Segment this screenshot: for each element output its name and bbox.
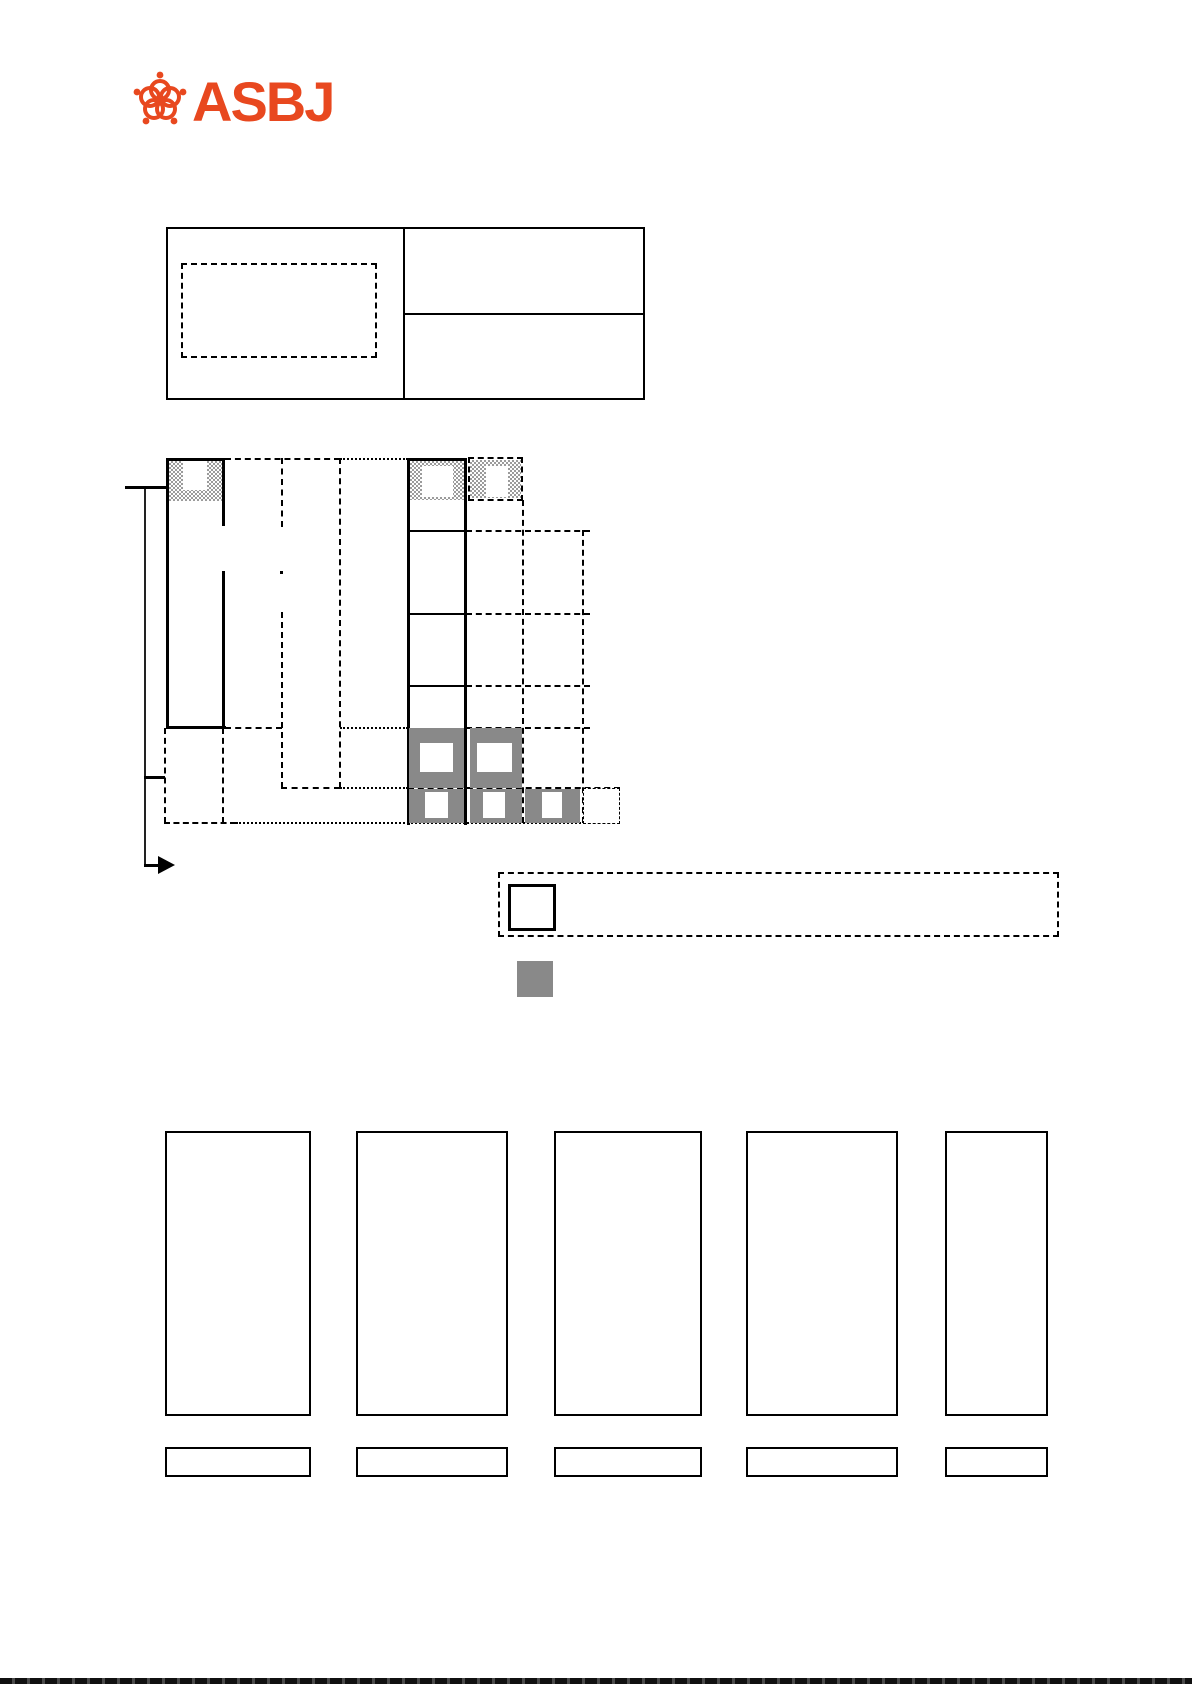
asbj-logo-text: ASBJ — [192, 74, 333, 130]
grid-row-line-2 — [466, 613, 590, 615]
grid-row-line-1 — [466, 530, 590, 532]
column2-right-edge — [464, 458, 467, 825]
appendix-caption-3 — [554, 1447, 702, 1477]
appendix-column-3 — [554, 1131, 702, 1416]
divider-x340 — [339, 458, 341, 788]
column1-bottom-edge — [166, 726, 226, 729]
asbj-logo: ASBJ — [130, 68, 333, 135]
document-page: ASBJ — [0, 0, 1192, 1685]
grid-row-line-3 — [466, 685, 590, 687]
hatched-header-3-inset — [486, 466, 508, 497]
gray-block-3-notch — [425, 792, 448, 818]
lower-left-edge — [164, 728, 166, 823]
left-bracket-line — [144, 486, 146, 866]
column1-right-edge-lower — [222, 571, 225, 728]
hatched-header-2-inset — [422, 466, 453, 497]
appendix-caption-5 — [945, 1447, 1048, 1477]
divider-x282-lower — [281, 612, 283, 788]
column2-row-line-2 — [407, 613, 464, 615]
appendix-column-4 — [746, 1131, 898, 1416]
grid-column-divider — [582, 530, 584, 823]
top-rule-dotted — [340, 458, 408, 460]
column2-row-line-1 — [407, 530, 464, 532]
column2-row-line-3 — [407, 685, 464, 687]
legend-outline-swatch — [508, 884, 556, 931]
left-bracket-tick-mid — [144, 776, 165, 779]
legend-gray-swatch — [517, 961, 553, 997]
gray-block-1-inset — [420, 743, 453, 772]
appendix-column-1 — [165, 1131, 311, 1416]
appendix-caption-2 — [356, 1447, 508, 1477]
bottom-rule-dashed — [164, 822, 236, 824]
appendix-column-5 — [945, 1131, 1048, 1416]
placeholder-dashed-box — [181, 263, 377, 358]
row728-dashed-left — [225, 727, 282, 729]
row2-empty-cell — [583, 788, 620, 824]
appendix-column-2 — [356, 1131, 508, 1416]
appendix-caption-1 — [165, 1447, 311, 1477]
footer-rule — [0, 1678, 1192, 1684]
row788-dotted-left — [340, 787, 408, 789]
column1-right-edge-upper — [222, 458, 225, 526]
column3-right-edge — [522, 500, 524, 823]
gray-block-5-notch — [542, 792, 562, 818]
legend-box — [498, 872, 1059, 937]
row728-dotted-left — [340, 727, 408, 729]
left-bracket-tick-top — [125, 486, 166, 489]
appendix-caption-4 — [746, 1447, 898, 1477]
arrowhead-icon — [158, 856, 175, 874]
lower-right-edge — [222, 728, 224, 823]
gray-block-4-notch — [483, 792, 505, 818]
header-table-right-divider — [403, 313, 645, 315]
divider-x282-dot — [280, 571, 283, 574]
hatched-header-1-inset — [183, 461, 207, 490]
row788-dashed-left — [281, 787, 340, 789]
divider-x282-upper — [281, 458, 283, 527]
plum-blossom-icon — [130, 68, 190, 135]
gray-block-2-inset — [477, 743, 512, 772]
